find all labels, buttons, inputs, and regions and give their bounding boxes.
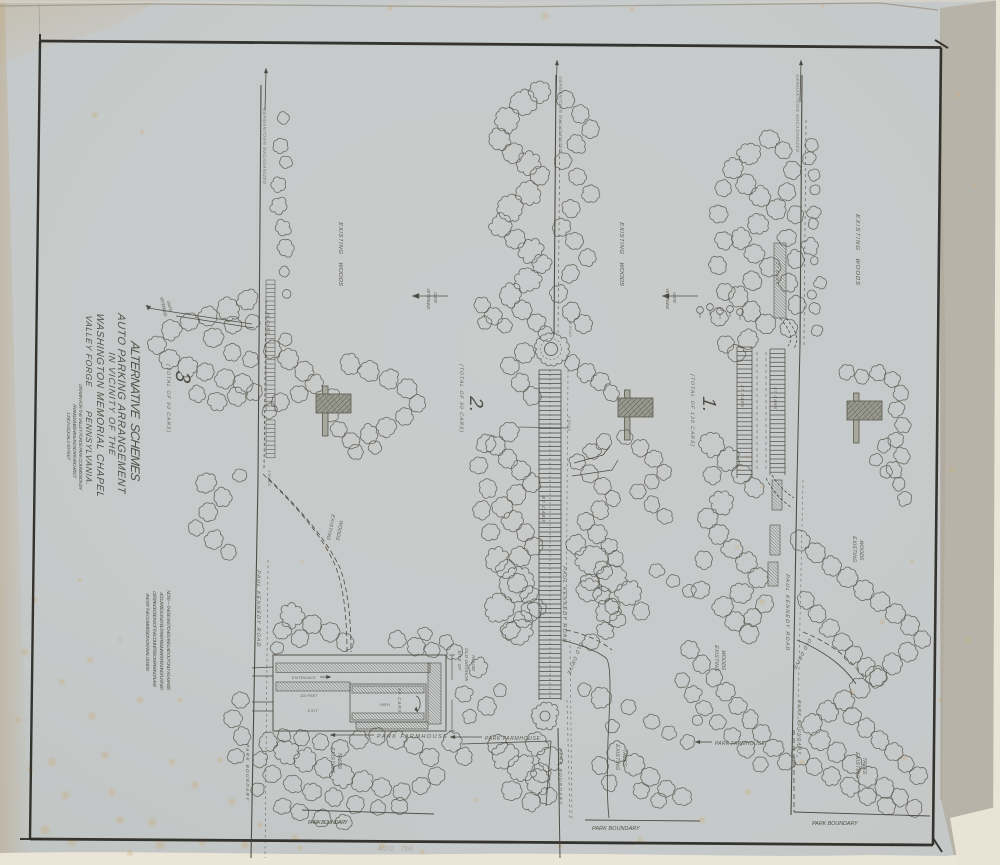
svg-text:TREES: TREES <box>336 752 342 770</box>
svg-text:EXISTING: EXISTING <box>337 222 343 255</box>
svg-text:EXISTING: EXISTING <box>614 744 620 771</box>
svg-text:GERMANTOWN MACADAMIZED: GERMANTOWN MACADAMIZED <box>262 108 267 185</box>
svg-text:GATE: GATE <box>433 292 438 304</box>
svg-text:PARK BOUNDARY: PARK BOUNDARY <box>308 820 348 826</box>
svg-text:PARK FARMHOUSE: PARK FARMHOUSE <box>485 736 540 742</box>
svg-text:EXISTING: EXISTING <box>851 536 857 563</box>
svg-text:VETERANS: VETERANS <box>665 288 670 310</box>
svg-text:EXIT: EXIT <box>308 709 318 713</box>
svg-text:27 CARS: 27 CARS <box>775 261 780 285</box>
svg-text:36 CARS: 36 CARS <box>266 312 271 335</box>
svg-text:SITE OF: SITE OF <box>457 650 462 671</box>
svg-text:PARK FARMHOUSE: PARK FARMHOUSE <box>377 734 447 740</box>
svg-text:AND BY THE COMMISSION ON FINAL: AND BY THE COMMISSION ON FINAL DESIGN <box>145 592 150 672</box>
svg-text:EXISTING: EXISTING <box>329 747 335 774</box>
svg-text:PARK BOUNDARY: PARK BOUNDARY <box>592 826 640 832</box>
svg-text:WOODS: WOODS <box>858 540 864 561</box>
svg-text:ACCURATE SURVEY BUT ARE PRELIM: ACCURATE SURVEY BUT ARE PRELIMINARY, PEN… <box>159 591 164 691</box>
svg-text:GERMANTOWN MACADAMIZED: GERMANTOWN MACADAMIZED <box>795 74 800 153</box>
svg-text:EXISTING: EXISTING <box>854 214 860 251</box>
svg-text:PATH: PATH <box>380 703 390 707</box>
svg-text:TREES: TREES <box>861 757 867 775</box>
svg-text:VALLEY FORGE PENNSYLVAN: VALLEY FORGE PENNSYLVANIA. <box>84 315 94 486</box>
svg-text:GATE: GATE <box>672 292 677 304</box>
svg-text:EXISTING: EXISTING <box>618 222 624 255</box>
svg-text:EXISTING: EXISTING <box>713 645 719 672</box>
svg-text:27 CARS: 27 CARS <box>740 384 745 408</box>
svg-text:(TOTAL OF 90 CARS): (TOTAL OF 90 CARS) <box>458 364 464 433</box>
svg-text:IN VICINITY OF THE: IN VICINITY OF THE <box>107 352 117 457</box>
svg-text:PAUL KENNEDY ROAD: PAUL KENNEDY ROAD <box>561 566 567 643</box>
svg-text:2 ROADS: 2 ROADS <box>267 469 271 487</box>
svg-text:PARK BOUNDARY: PARK BOUNDARY <box>812 821 858 827</box>
svg-text:(TOTAL OF 90 CARS): (TOTAL OF 90 CARS) <box>165 364 171 433</box>
svg-text:1 INCH EQUALS 50 FEET: 1 INCH EQUALS 50 FEET <box>66 412 71 462</box>
svg-text:PARK FARMHOUSE: PARK FARMHOUSE <box>715 741 765 747</box>
svg-text:2 ROAD: 2 ROAD <box>567 415 571 432</box>
svg-text:ALTERNATIVE SCHEMES: ALTERNATIVE SCHEMES <box>128 340 142 483</box>
svg-text:CERTAIN DECISIONS OF THE COMMI: CERTAIN DECISIONS OF THE COMMITTEE ON PA… <box>152 591 157 689</box>
svg-text:27 CARS: 27 CARS <box>773 386 778 410</box>
svg-text:TREES: TREES <box>621 749 627 767</box>
svg-text:WOODS: WOODS <box>720 650 726 671</box>
svg-text:GERMANTOWN MACADAMIZED: GERMANTOWN MACADAMIZED <box>558 76 563 153</box>
svg-text:ENTRANCE: ENTRANCE <box>292 675 316 680</box>
svg-text:PAUL KENNEDY ROAD: PAUL KENNEDY ROAD <box>255 570 261 647</box>
svg-text:WASHINGTON MEMORIAL CHAPEL: WASHINGTON MEMORIAL CHAPEL <box>94 313 105 499</box>
svg-text:NOTE — THESE SKETCHES ARE LAID: NOTE — THESE SKETCHES ARE LAID OUT ONLY … <box>166 590 171 692</box>
svg-text:2.: 2. <box>465 394 486 414</box>
svg-text:EXISTING: EXISTING <box>854 752 860 779</box>
svg-text:120 FEET: 120 FEET <box>300 694 318 698</box>
svg-text:4072 700: 4072 700 <box>378 846 413 853</box>
svg-text:OLD DIVISION: OLD DIVISION <box>464 648 469 683</box>
svg-text:(TOTAL OF 130 CARS): (TOTAL OF 130 CARS) <box>689 374 695 447</box>
svg-text:PAUL KENNEDY ROAD: PAUL KENNEDY ROAD <box>784 574 790 651</box>
svg-text:WOODS: WOODS <box>618 262 624 287</box>
svg-text:WOODS: WOODS <box>337 262 343 287</box>
svg-text:WOODS: WOODS <box>854 258 860 286</box>
svg-text:1.: 1. <box>698 395 719 414</box>
svg-text:90 CARS: 90 CARS <box>397 688 402 713</box>
svg-text:DRAWN FOR THE VALLEY FORGE PAR: DRAWN FOR THE VALLEY FORGE PARK COMMISSI… <box>78 384 83 492</box>
svg-text:VETERANS: VETERANS <box>426 288 431 310</box>
svg-text:FRANKLIN MEEHAN LANDSCAPE ARCH: FRANKLIN MEEHAN LANDSCAPE ARCHITECT <box>72 404 77 480</box>
